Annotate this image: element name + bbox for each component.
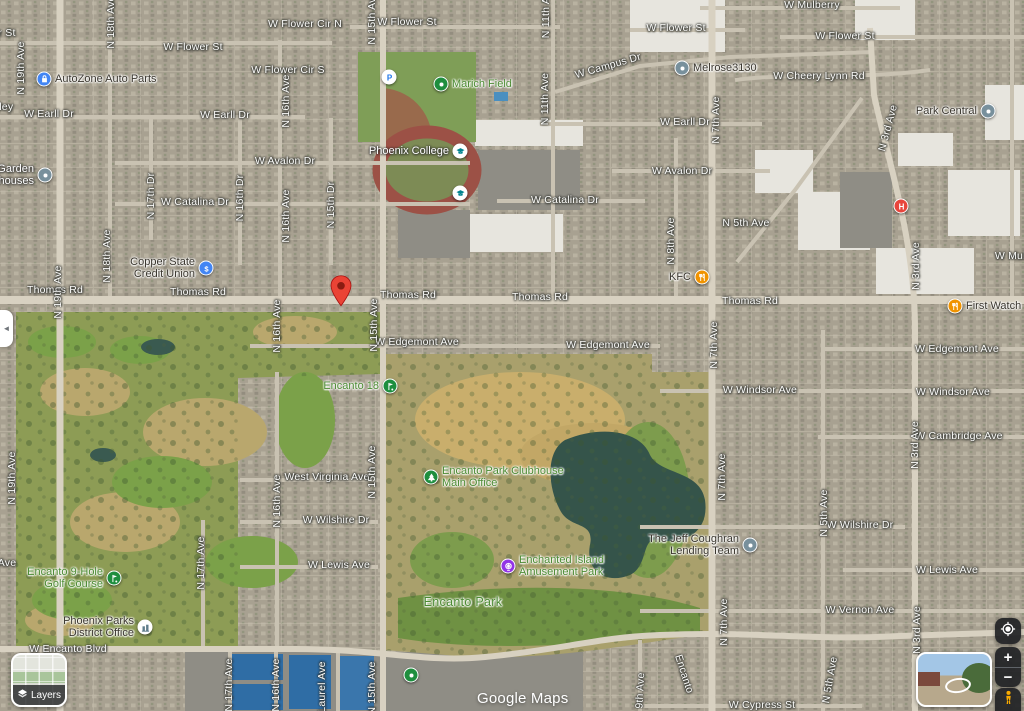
zoom-in-button[interactable]: +	[995, 647, 1021, 667]
my-location-icon	[1000, 621, 1016, 642]
side-panel-collapse-button[interactable]: ◄	[0, 310, 13, 347]
pegman-button[interactable]	[995, 688, 1021, 711]
my-location-button[interactable]	[995, 618, 1021, 644]
chevron-left-icon: ◄	[3, 324, 11, 333]
layers-button[interactable]: Layers	[11, 653, 67, 707]
zoom-control: + −	[995, 647, 1021, 687]
pegman-icon	[1002, 690, 1015, 710]
street-view-building	[918, 672, 940, 685]
layers-label: Layers	[31, 690, 61, 701]
zoom-out-button[interactable]: −	[995, 667, 1021, 687]
layers-stack-icon	[17, 688, 28, 702]
map-canvas[interactable]: r StlleyW Flower Cir NW Flower StW Flowe…	[0, 0, 1024, 711]
street-view-arrow-icon	[944, 677, 972, 695]
google-maps-watermark[interactable]: Google Maps	[477, 690, 568, 707]
street-view-preview-thumbnail[interactable]	[916, 652, 992, 707]
